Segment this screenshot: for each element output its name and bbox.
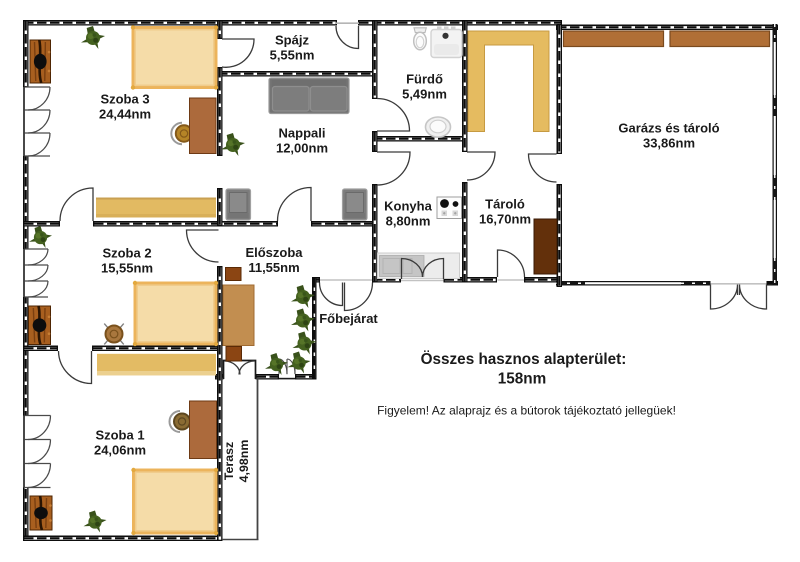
svg-text:8,80nm: 8,80nm (386, 214, 431, 229)
svg-text:5,55nm: 5,55nm (270, 48, 315, 63)
svg-text:158nm: 158nm (498, 371, 546, 388)
svg-text:16,70nm: 16,70nm (479, 212, 531, 227)
svg-text:Fürdő: Fürdő (406, 72, 443, 87)
svg-text:Szoba 1: Szoba 1 (95, 428, 144, 443)
svg-text:33,86nm: 33,86nm (643, 136, 695, 151)
svg-text:Garázs és tároló: Garázs és tároló (618, 121, 719, 136)
svg-text:Előszoba: Előszoba (245, 245, 303, 260)
svg-text:Szoba 3: Szoba 3 (100, 92, 149, 107)
svg-text:12,00nm: 12,00nm (276, 141, 328, 156)
svg-text:Tároló: Tároló (485, 197, 525, 212)
svg-text:Szoba 2: Szoba 2 (102, 246, 151, 261)
svg-text:Nappali: Nappali (279, 126, 326, 141)
svg-text:Spájz: Spájz (275, 33, 309, 48)
svg-text:4,98nm: 4,98nm (237, 440, 251, 483)
svg-text:Terasz: Terasz (222, 442, 236, 480)
svg-text:Figyelem! Az alaprajz és a bút: Figyelem! Az alaprajz és a bútorok tájék… (377, 404, 676, 418)
svg-text:Főbejárat: Főbejárat (319, 311, 378, 326)
svg-text:15,55nm: 15,55nm (101, 261, 153, 276)
svg-text:24,06nm: 24,06nm (94, 443, 146, 458)
svg-text:Konyha: Konyha (384, 199, 432, 214)
svg-text:11,55nm: 11,55nm (248, 260, 299, 275)
svg-text:5,49nm: 5,49nm (402, 87, 447, 102)
svg-text:24,44nm: 24,44nm (99, 107, 151, 122)
svg-text:Összes hasznos alapterület:: Összes hasznos alapterület: (421, 351, 627, 368)
